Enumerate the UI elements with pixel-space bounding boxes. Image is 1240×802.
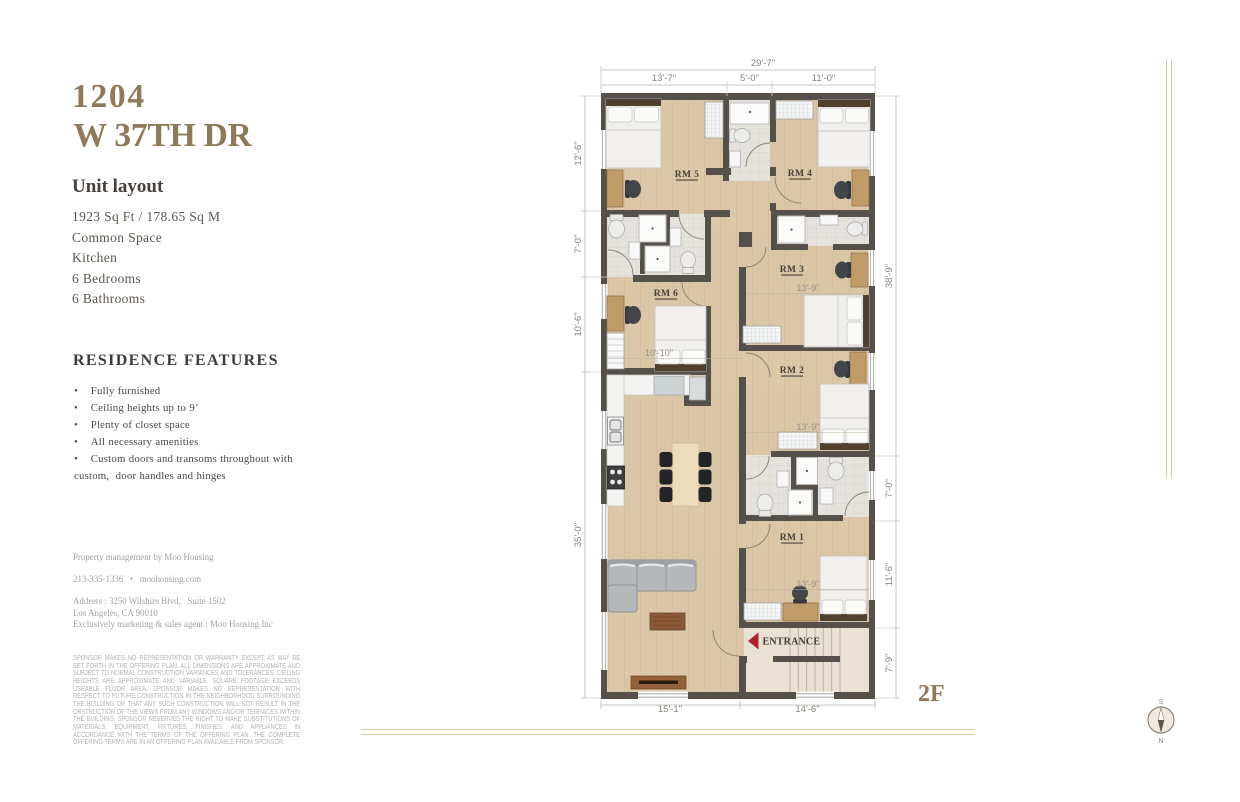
svg-text:RM 1: RM 1: [780, 533, 805, 543]
svg-text:RM 4: RM 4: [788, 169, 813, 179]
svg-text:RM 5: RM 5: [675, 170, 700, 180]
svg-text:15'-1": 15'-1": [658, 704, 682, 715]
svg-text:13'-9": 13'-9": [797, 579, 820, 589]
svg-text:S: S: [1159, 699, 1164, 706]
svg-text:RM 3: RM 3: [780, 265, 805, 275]
svg-text:N: N: [1158, 738, 1163, 745]
svg-text:RM 2: RM 2: [780, 366, 805, 376]
svg-text:14'-6": 14'-6": [795, 704, 819, 715]
svg-text:13'-9": 13'-9": [797, 422, 820, 432]
svg-text:35'-0": 35'-0": [573, 523, 584, 547]
svg-text:11'-0": 11'-0": [812, 73, 836, 84]
svg-text:5'-0": 5'-0": [740, 73, 759, 84]
svg-text:10'-10": 10'-10": [645, 348, 673, 358]
svg-text:ENTRANCE: ENTRANCE: [763, 637, 821, 648]
svg-text:38'-9": 38'-9": [884, 264, 895, 288]
svg-text:7'-0": 7'-0": [573, 235, 584, 254]
svg-text:RM 6: RM 6: [654, 289, 679, 299]
svg-text:13'-9": 13'-9": [797, 283, 820, 293]
svg-text:12'-6": 12'-6": [573, 141, 584, 165]
svg-text:11'-6": 11'-6": [884, 563, 895, 587]
svg-text:13'-7": 13'-7": [652, 73, 676, 84]
svg-text:7'-0": 7'-0": [884, 479, 895, 498]
svg-text:10'-6": 10'-6": [573, 312, 584, 336]
svg-text:7'-9": 7'-9": [884, 654, 895, 673]
svg-text:29'-7": 29'-7": [751, 58, 775, 69]
svg-text:2F: 2F: [918, 681, 945, 707]
